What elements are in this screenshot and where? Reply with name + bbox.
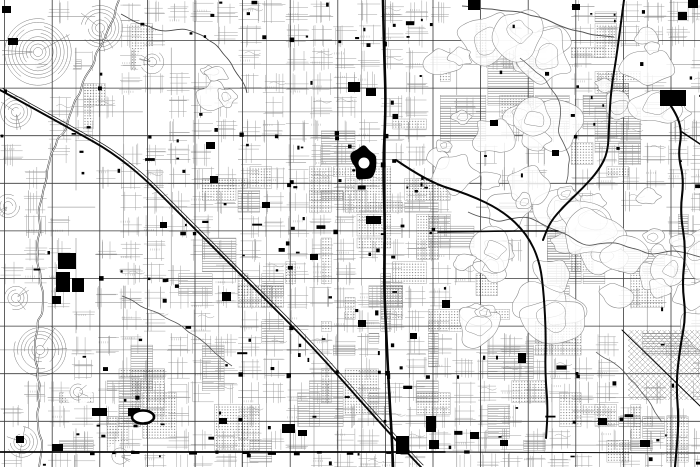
map-canvas xyxy=(0,0,700,467)
oval-track xyxy=(132,411,154,424)
map[interactable] xyxy=(0,0,700,467)
